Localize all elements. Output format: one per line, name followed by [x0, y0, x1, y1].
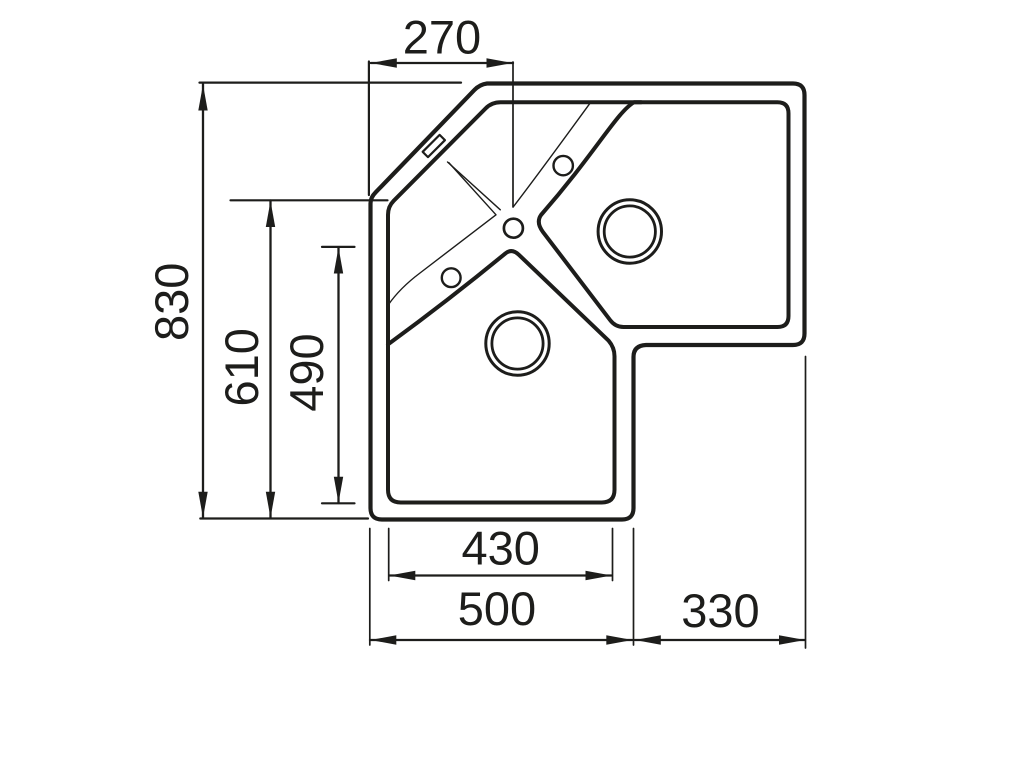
svg-text:430: 430	[461, 522, 539, 575]
svg-text:490: 490	[280, 333, 333, 411]
svg-text:610: 610	[215, 328, 268, 406]
svg-text:270: 270	[403, 11, 481, 64]
svg-text:330: 330	[681, 584, 759, 637]
svg-text:500: 500	[458, 582, 536, 635]
svg-text:830: 830	[145, 263, 198, 341]
